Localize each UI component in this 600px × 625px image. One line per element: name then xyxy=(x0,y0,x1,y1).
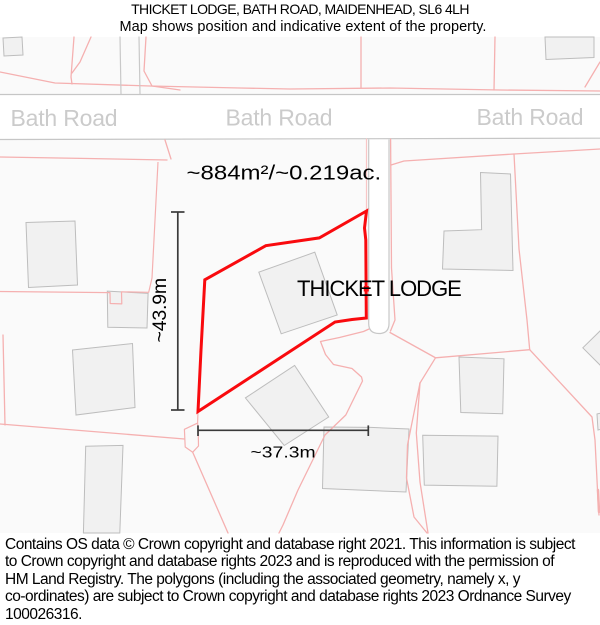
svg-text:Bath Road: Bath Road xyxy=(226,105,333,131)
svg-text:~884m²/~0.219ac.: ~884m²/~0.219ac. xyxy=(187,162,382,185)
svg-text:Bath Road: Bath Road xyxy=(477,104,584,130)
svg-text:~37.3m: ~37.3m xyxy=(251,443,316,461)
svg-text:~43.9m: ~43.9m xyxy=(149,278,171,342)
svg-text:Bath Road: Bath Road xyxy=(11,105,118,131)
svg-text:THICKET LODGE: THICKET LODGE xyxy=(297,276,461,301)
